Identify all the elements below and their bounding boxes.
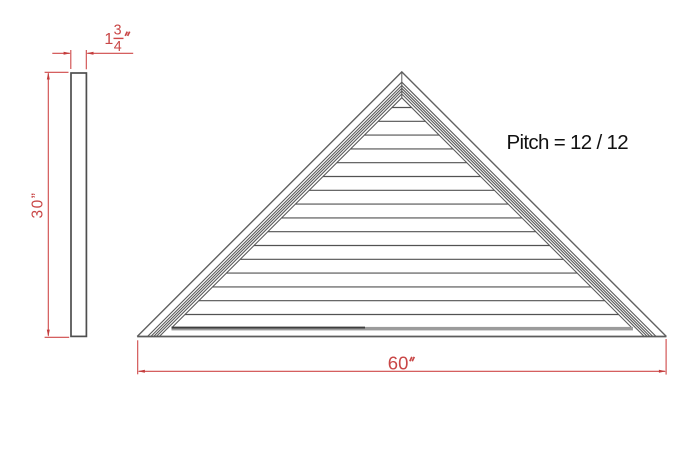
svg-text:Pitch = 12 / 12: Pitch = 12 / 12 <box>507 131 629 154</box>
svg-text:4: 4 <box>114 39 122 55</box>
svg-text:30”: 30” <box>30 192 47 219</box>
svg-text:1: 1 <box>104 31 113 48</box>
svg-text:3: 3 <box>114 22 122 38</box>
svg-text:60: 60 <box>388 352 409 373</box>
